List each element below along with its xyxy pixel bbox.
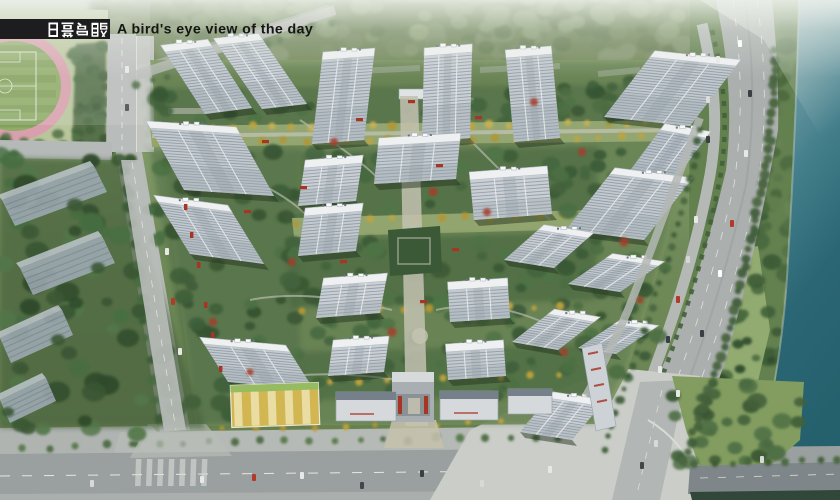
svg-text:A bird's eye view of the day: A bird's eye view of the day [117, 22, 313, 38]
